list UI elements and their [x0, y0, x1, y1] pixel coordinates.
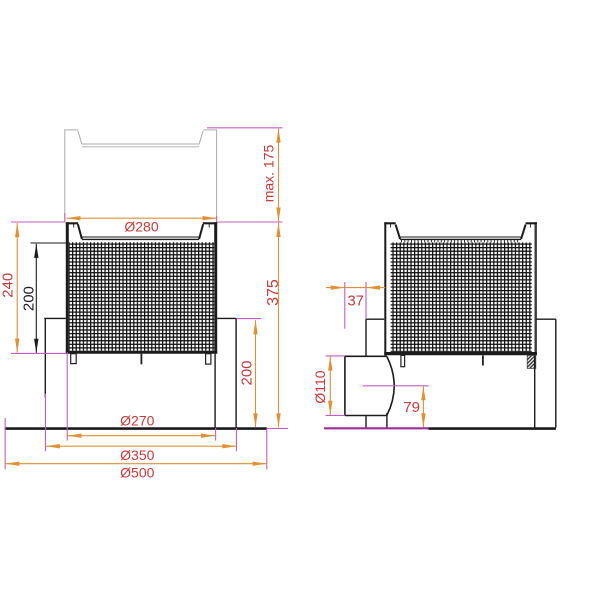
svg-text:Ø280: Ø280	[124, 219, 158, 235]
svg-text:Ø110: Ø110	[312, 370, 328, 403]
svg-text:200: 200	[239, 360, 256, 385]
svg-text:37: 37	[347, 293, 364, 310]
svg-text:Ø500: Ø500	[120, 465, 154, 481]
svg-text:Ø350: Ø350	[120, 447, 154, 463]
svg-text:max. 175: max. 175	[261, 144, 277, 202]
svg-text:200: 200	[20, 286, 37, 311]
svg-text:375: 375	[265, 279, 282, 306]
svg-text:Ø270: Ø270	[120, 413, 154, 429]
svg-text:240: 240	[0, 273, 17, 298]
svg-text:79: 79	[403, 399, 420, 416]
